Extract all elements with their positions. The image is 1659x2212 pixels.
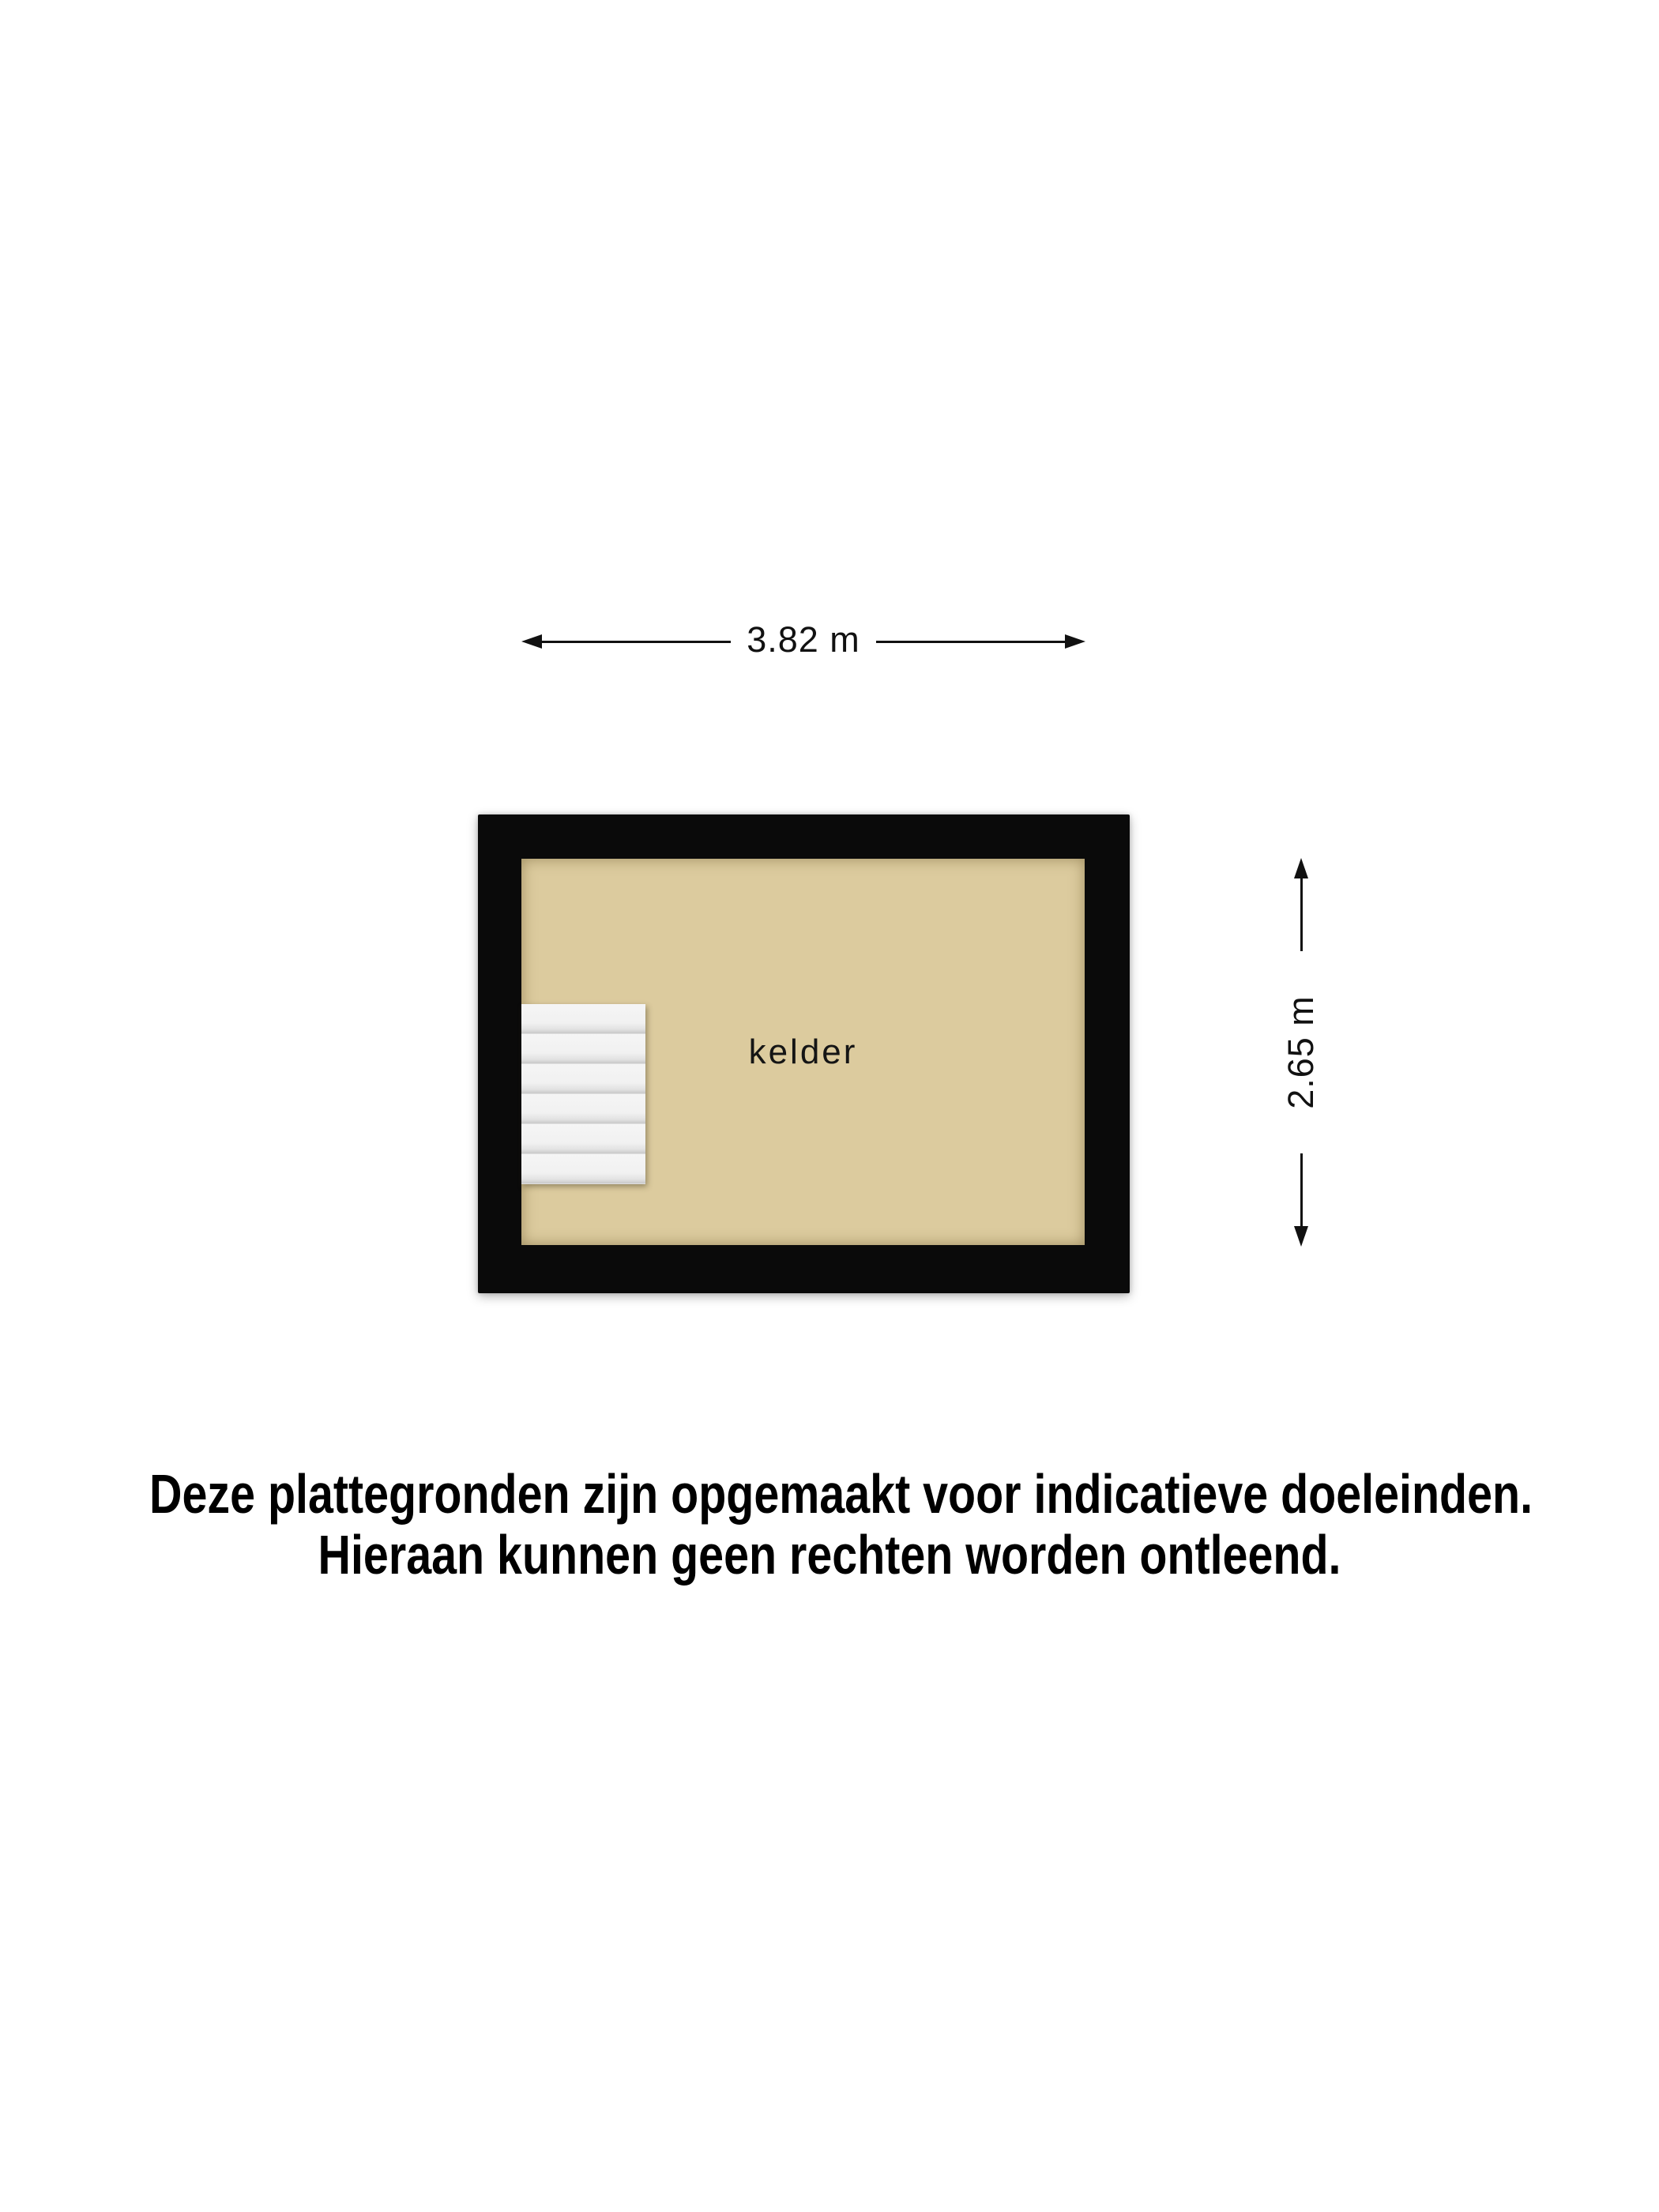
- room-kelder-walls: kelder: [478, 814, 1130, 1293]
- arrowhead-left-icon: [521, 634, 542, 649]
- stairs: [521, 1004, 645, 1184]
- dimension-line: [876, 641, 1065, 643]
- disclaimer-line1: Deze plattegronden zijn opgemaakt voor i…: [149, 1464, 1510, 1525]
- dimension-line: [1300, 878, 1303, 951]
- room-label: kelder: [749, 1033, 858, 1072]
- dimension-height-label: 2.65 m: [1281, 995, 1322, 1109]
- arrowhead-right-icon: [1065, 634, 1085, 649]
- disclaimer: Deze plattegronden zijn opgemaakt voor i…: [149, 1464, 1510, 1586]
- dimension-horizontal: 3.82 m: [521, 624, 1085, 659]
- dimension-line: [1300, 1153, 1303, 1226]
- room-kelder-floor: kelder: [521, 859, 1085, 1245]
- dimension-width-label: 3.82 m: [731, 619, 876, 660]
- arrowhead-up-icon: [1294, 858, 1308, 878]
- disclaimer-line2: Hieraan kunnen geen rechten worden ontle…: [149, 1525, 1510, 1586]
- dimension-line: [542, 641, 731, 643]
- dimension-vertical: 2.65 m: [1286, 858, 1316, 1247]
- arrowhead-down-icon: [1294, 1226, 1308, 1247]
